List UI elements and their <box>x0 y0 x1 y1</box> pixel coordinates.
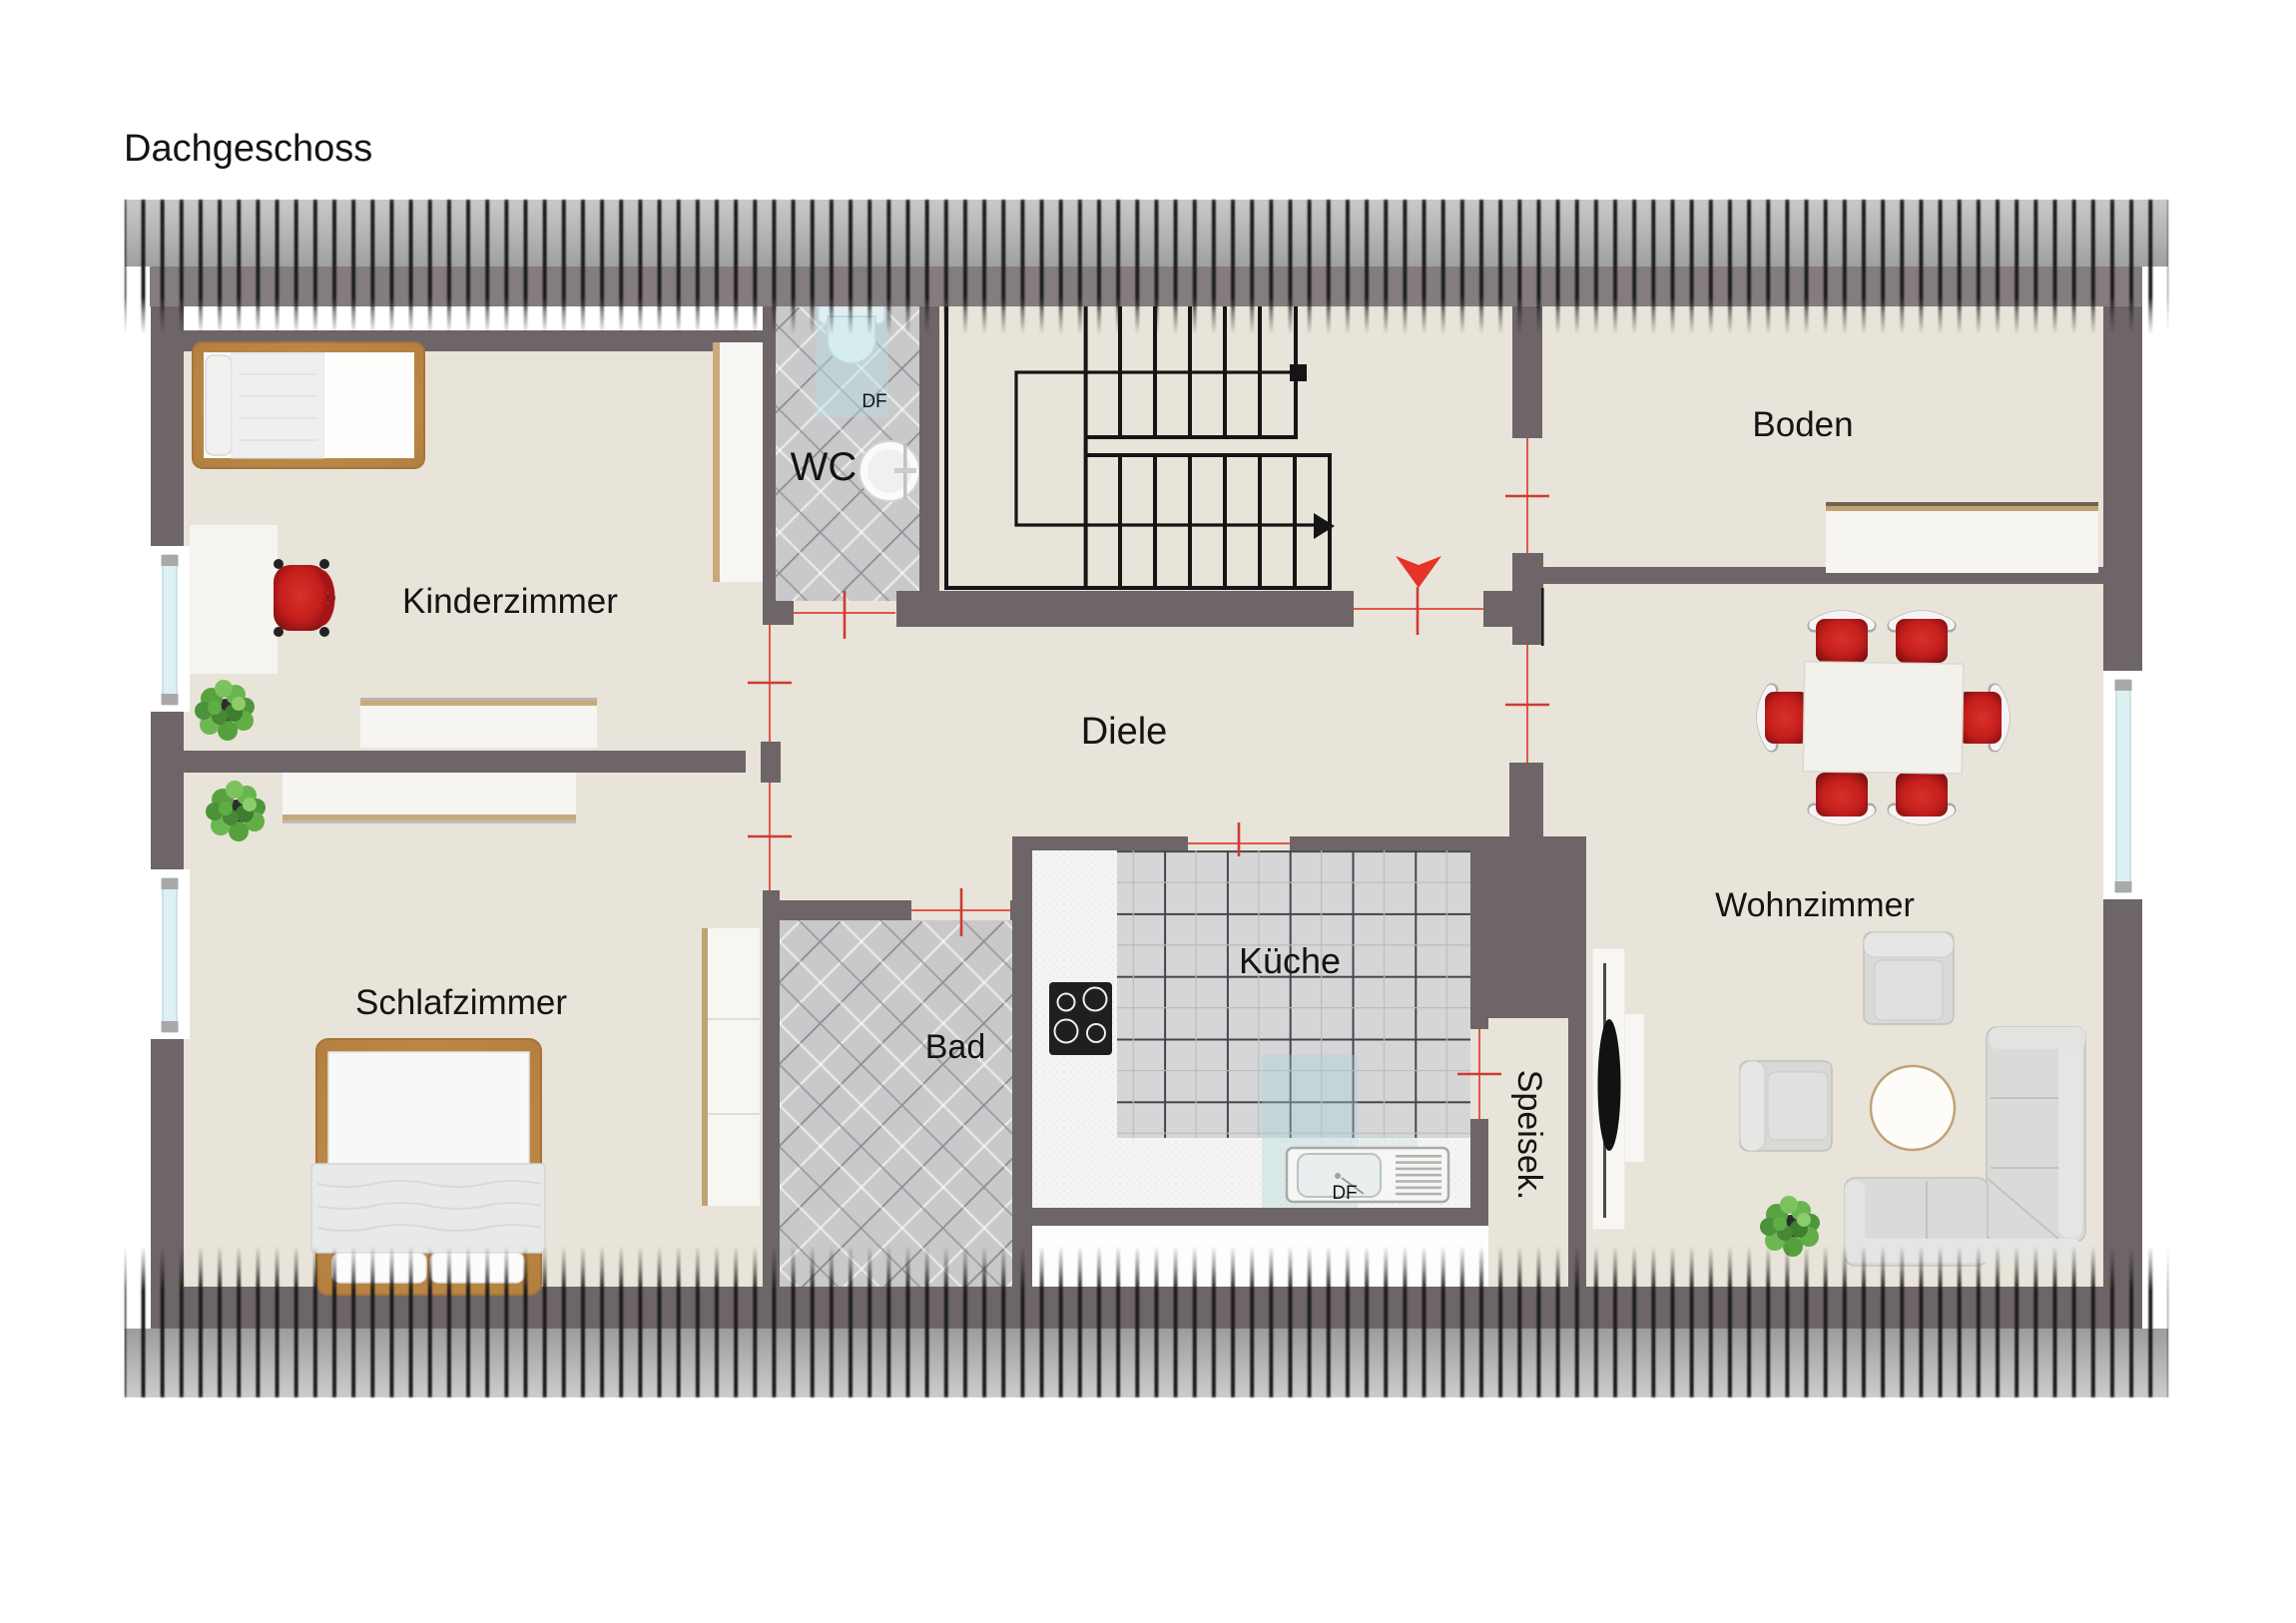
svg-text:Schlafzimmer: Schlafzimmer <box>355 983 567 1022</box>
svg-text:Wohnzimmer: Wohnzimmer <box>1715 886 1915 924</box>
svg-text:Küche: Küche <box>1239 940 1341 981</box>
svg-text:Kinderzimmer: Kinderzimmer <box>402 582 618 621</box>
svg-text:Bad: Bad <box>925 1028 986 1066</box>
svg-text:WC: WC <box>791 445 858 489</box>
svg-text:DF: DF <box>1332 1183 1357 1204</box>
svg-text:Dachgeschoss: Dachgeschoss <box>124 128 372 170</box>
svg-text:Diele: Diele <box>1081 711 1168 753</box>
svg-text:Boden: Boden <box>1752 405 1853 444</box>
svg-text:DF: DF <box>861 391 886 412</box>
svg-text:Speisek.: Speisek. <box>1510 1070 1548 1200</box>
